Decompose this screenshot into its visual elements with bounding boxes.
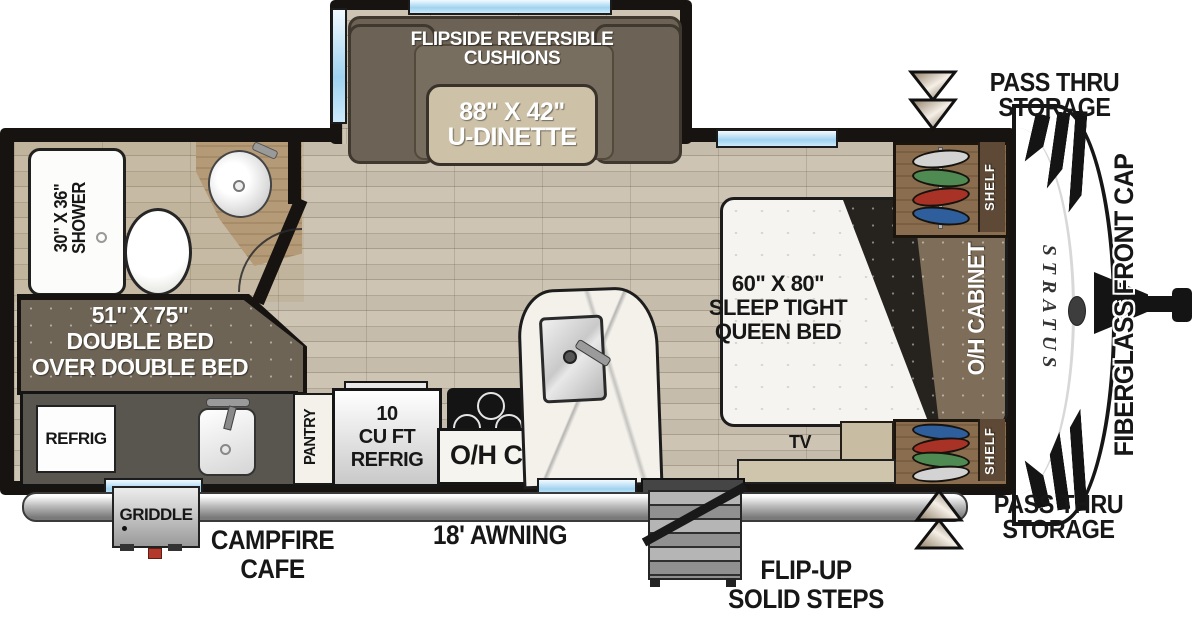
tv-label: TV [770,433,830,451]
griddle-foot [168,544,182,551]
brand-logo-icon [1068,296,1086,326]
window-bedroom-top [716,129,838,148]
griddle-knob-icon [148,548,162,559]
bathroom-wall-divider [288,142,301,204]
flip-up-steps-label: FLIP-UP SOLID STEPS [716,556,896,614]
clothes-icon [911,204,971,228]
shower-name-label: SHOWER [70,158,88,278]
clothes-icon [911,464,970,485]
floorplan-canvas: STRATUS FIBERGLASS FRONT CAP FLIPSIDE RE… [0,0,1200,626]
campfire-line1: CAMPFIRE [198,526,347,555]
bed-label: 60" X 80" SLEEP TIGHT QUEEN BED [693,272,863,345]
shelf-bottom-label: SHELF [983,406,997,496]
pass-thru-bottom-line2: STORAGE [975,517,1142,542]
steps-line1: FLIP-UP [716,556,896,585]
shower-label: 30" X 36" SHOWER [52,158,96,278]
window-slideout-side [331,8,347,124]
clothes-icon [911,185,971,210]
pass-thru-storage-label-bottom: PASS THRU STORAGE [975,492,1142,543]
fridge-line2: CU FT [335,426,439,449]
bed-size-label: 60" X 80" [693,272,863,296]
pass-thru-arrow-down-icon [906,70,960,132]
toilet [124,208,192,296]
window-slideout-top [408,0,612,15]
griddle-foot [120,544,134,551]
steps-line2: SOLID STEPS [716,585,896,614]
dinette-cushions-line1: FLIPSIDE REVERSIBLE [352,30,672,49]
shower-size-label: 30" X 36" [52,158,70,278]
fridge-10cuft: 10 CU FT REFRIG [332,388,442,487]
clothes-icon [911,147,971,171]
hitch-coupler [1172,288,1192,322]
bunk-label: 51" X 75" DOUBLE BED OVER DOUBLE BED [0,303,280,380]
dinette-table: 88" X 42" U-DINETTE [426,84,598,166]
dinette-cushions-label: FLIPSIDE REVERSIBLE CUSHIONS [352,30,672,69]
campfire-line2: CAFE [198,555,347,584]
bunk-size-label: 51" X 75" [0,303,280,329]
kitchen-sink-drain-icon [220,444,231,455]
griddle-dot-icon [122,526,127,531]
front-cap-callout: FIBERGLASS FRONT CAP [1109,112,1139,498]
shelf-top-label: SHELF [983,142,997,232]
refrig-label: REFRIG [45,430,106,447]
pass-thru-top-line2: STORAGE [971,95,1138,120]
dinette-size-label: 88" X 42" [429,100,595,126]
bathroom-sink-drain-icon [233,180,245,192]
dinette-name-label: U-DINETTE [429,125,595,151]
shower-drain-icon [96,232,107,243]
tv-console [737,459,896,484]
bed-line3-label: QUEEN BED [693,320,863,344]
clothes-icon [911,167,970,190]
campfire-cafe-label: CAMPFIRE CAFE [198,526,347,584]
griddle-label: GRIDDLE [114,506,198,523]
nightstand [840,421,894,461]
dinette-cushions-line2: CUSHIONS [352,49,672,68]
brand-stratus-label: STRATUS [1034,219,1060,399]
awning-label: 18' AWNING [419,522,581,550]
fridge-line3: REFRIG [335,449,439,472]
bed-line2-label: SLEEP TIGHT [693,296,863,320]
pantry-label: PANTRY [302,398,320,475]
pass-thru-arrow-up-icon [912,488,966,550]
fridge-line1: 10 [335,403,439,426]
steps-foot [650,578,660,587]
griddle: GRIDDLE [112,486,200,548]
oh-cabinet-bed-label: O/H CABINET [963,217,989,401]
island-sink-drain-icon [563,350,577,364]
bunk-line3-label: OVER DOUBLE BED [0,355,280,381]
refrigerator: REFRIG [36,405,116,473]
pass-thru-storage-label-top: PASS THRU STORAGE [971,70,1138,121]
bunk-line2-label: DOUBLE BED [0,329,280,355]
